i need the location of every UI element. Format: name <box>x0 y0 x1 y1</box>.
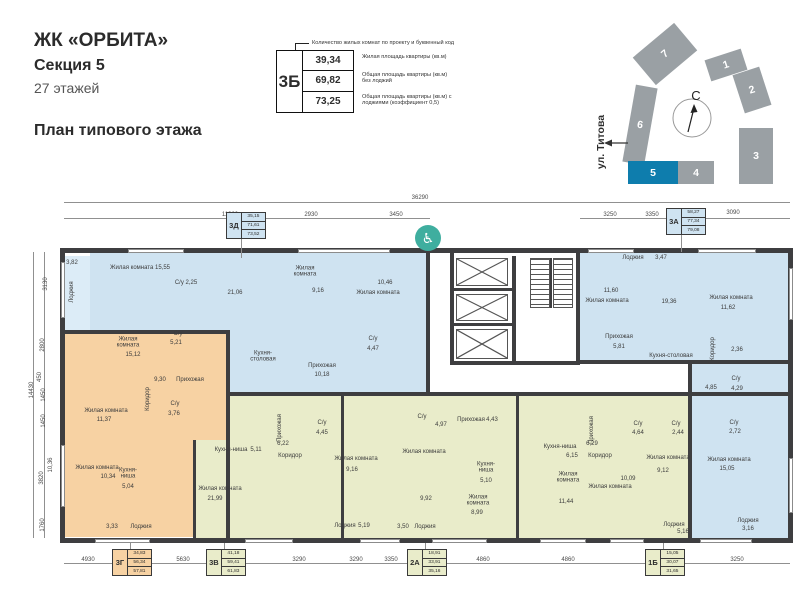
room-label: 9,92 <box>420 496 432 502</box>
wall <box>426 362 430 396</box>
stairs-flight <box>530 258 550 308</box>
room-label: 4,43 <box>486 417 498 423</box>
room-label: Лоджия <box>737 518 758 524</box>
room-label: Коридор <box>588 453 612 459</box>
room-label: Жилая комната <box>75 465 118 471</box>
room-label: С/у <box>369 336 378 342</box>
room-label: 15,12 <box>125 352 140 358</box>
dimension-label: 1760 <box>40 518 46 531</box>
room-label: Жилая комната <box>334 456 377 462</box>
room-label: 2,72 <box>729 429 741 435</box>
room-label: 10,09 <box>620 476 635 482</box>
wall <box>576 252 580 364</box>
room-label: 3,76 <box>168 411 180 417</box>
dimension-label: 1450 <box>41 388 47 401</box>
room-label: Жилая комната <box>198 486 241 492</box>
room-label: Прихожая <box>176 377 204 383</box>
wall <box>454 288 512 291</box>
room-label: 11,44 <box>559 499 574 505</box>
room-label: 3,50 <box>397 524 409 530</box>
wall <box>226 330 230 538</box>
apartment-tag-value: 79,08 <box>682 226 705 234</box>
window <box>61 445 65 507</box>
apartment-tag-value: 73,52 <box>242 230 265 238</box>
floor-region <box>62 256 90 332</box>
room-label: 4,97 <box>435 422 447 428</box>
room-label: Жилая комната <box>402 449 445 455</box>
apartment-tag-code: 3Д <box>227 213 242 238</box>
room-label: 4,47 <box>367 346 379 352</box>
window <box>298 249 390 253</box>
apartment-tag-value: 59,41 <box>222 559 245 568</box>
room-label: С/у <box>318 420 327 426</box>
dimension-label: 4860 <box>476 557 489 563</box>
wall <box>60 330 230 334</box>
wall <box>516 394 519 538</box>
room-label: С/у <box>672 421 681 427</box>
room-label: Кухня-столовая <box>649 353 693 359</box>
stairs-divider <box>550 258 552 308</box>
window <box>432 539 487 543</box>
dimension-label: 3350 <box>645 212 658 218</box>
room-label: 10,34 <box>100 474 115 480</box>
dimension-line <box>681 235 682 252</box>
room-label: С/у <box>418 414 427 420</box>
wall <box>450 252 454 364</box>
room-label: Жилая комната <box>588 484 631 490</box>
apartment-tag-value: 31,65 <box>661 567 684 575</box>
window <box>360 539 400 543</box>
wall <box>60 538 793 543</box>
dimension-label: 3250 <box>730 557 743 563</box>
window <box>95 539 150 543</box>
apartment-tag-code: 2А <box>408 550 423 575</box>
room-label: 3,82 <box>66 260 78 266</box>
wall <box>454 323 512 326</box>
room-label: 5,21 <box>170 340 182 346</box>
apartment-tag-values: 34,8356,3457,81 <box>128 550 151 575</box>
room-label: 21,06 <box>227 290 242 296</box>
room-label: Лоджия <box>414 524 435 530</box>
apartment-tag: 2А18,9133,9135,16 <box>407 549 447 576</box>
apartment-tag-value: 77,34 <box>682 218 705 227</box>
room-label: 6,15 <box>566 453 578 459</box>
wall <box>512 256 516 364</box>
room-label: 19,36 <box>661 299 676 305</box>
room-label: 6,29 <box>586 441 598 447</box>
room-label: Лоджия <box>663 522 684 528</box>
dimension-label: 5630 <box>176 557 189 563</box>
elevator-shaft <box>456 258 508 286</box>
wall <box>450 361 580 365</box>
room-label: 4,85 <box>705 385 717 391</box>
window <box>700 539 752 543</box>
room-label: Жилая комната <box>646 455 689 461</box>
apartment-tag-value: 58,27 <box>682 209 705 218</box>
dimension-label: 4930 <box>81 557 94 563</box>
wall <box>341 394 344 538</box>
room-label: Прихожая <box>277 414 283 442</box>
room-label: 2,44 <box>672 430 684 436</box>
window <box>789 268 793 320</box>
room-label: 9,12 <box>657 468 669 474</box>
dimension-line <box>64 202 790 203</box>
dimension-label: 2800 <box>40 338 46 351</box>
apartment-tag-values: 15,0530,0731,65 <box>661 550 684 575</box>
apartment-tag-value: 41,18 <box>222 550 245 559</box>
apartment-tag-value: 71,61 <box>242 222 265 231</box>
window <box>61 262 65 318</box>
apartment-tag-code: 1Б <box>646 550 661 575</box>
dimension-label: 450 <box>37 372 43 382</box>
window <box>245 539 293 543</box>
room-label: Прихожая <box>589 416 595 444</box>
room-label: Кухня-ниша <box>215 447 248 453</box>
dimension-label: 3820 <box>39 471 45 484</box>
room-label: С/у <box>730 420 739 426</box>
room-label: С/у <box>634 421 643 427</box>
room-label: 4,45 <box>316 430 328 436</box>
room-label: Жилая комната <box>707 457 750 463</box>
room-label: Кухня-ниша <box>115 468 141 481</box>
room-label: Жилая комната <box>462 495 494 508</box>
room-label: 6,22 <box>277 441 289 447</box>
room-label: 5,11 <box>250 447 261 453</box>
dimension-label: 36290 <box>412 195 429 201</box>
room-label: 3,16 <box>742 526 754 532</box>
floor-region <box>578 252 793 362</box>
window <box>588 249 634 253</box>
dimension-label: 4860 <box>561 557 574 563</box>
room-label: Лоджия <box>69 281 75 302</box>
room-label: 9,30 <box>154 377 166 383</box>
floor-plan-canvas: ♿3,82ЛоджияЖилая комната 15,55С/у 2,2521… <box>0 0 800 601</box>
room-label: 5,19 <box>358 523 370 529</box>
room-label: 11,62 <box>721 305 736 311</box>
apartment-tag-values: 35,1571,6173,52 <box>242 213 265 238</box>
apartment-tag-value: 30,07 <box>661 559 684 568</box>
room-label: Прихожая <box>308 363 336 369</box>
room-label: Кухня-ниша <box>544 444 577 450</box>
apartment-tag: 3Г34,8356,3457,81 <box>112 549 152 576</box>
room-label: Жилая комната <box>84 408 127 414</box>
room-label: С/у <box>732 376 741 382</box>
room-label: Прихожая <box>457 417 485 423</box>
room-label: Жилая комната <box>289 266 321 279</box>
floor-plan-poster: { "header": { "title": "ЖК «ОРБИТА»", "s… <box>0 0 800 601</box>
dimension-label: 3450 <box>389 212 402 218</box>
apartment-tag-value: 33,91 <box>423 559 446 568</box>
apartment-tag: 3А58,2777,3479,08 <box>666 208 706 235</box>
room-label: 4,29 <box>731 386 743 392</box>
wall <box>688 360 692 538</box>
window <box>128 249 184 253</box>
room-label: 3,33 <box>106 524 118 530</box>
apartment-tag-code: 3Г <box>113 550 128 575</box>
window <box>698 249 756 253</box>
room-label: С/у <box>171 401 180 407</box>
dimension-line <box>241 239 242 258</box>
room-label: Жилая комната <box>585 298 628 304</box>
room-label: Коридор <box>145 387 151 411</box>
room-label: Лоджия <box>334 523 355 529</box>
apartment-tag: 1Б15,0530,0731,65 <box>645 549 685 576</box>
apartment-tag-value: 56,34 <box>128 559 151 568</box>
room-label: 15,05 <box>719 466 734 472</box>
room-label: Кухня-ниша <box>473 462 499 475</box>
room-label: Жилая комната <box>709 295 752 301</box>
room-label: Коридор <box>710 337 716 361</box>
apartment-tag-value: 35,16 <box>423 567 446 575</box>
room-label: 3,47 <box>655 255 667 261</box>
window <box>610 539 644 543</box>
room-label: Лоджия <box>622 255 643 261</box>
dimension-label: 14430 <box>29 382 35 399</box>
apartment-tag-value: 57,81 <box>128 567 151 575</box>
room-label: Кухня-столовая <box>245 351 281 364</box>
stairs-flight <box>553 258 573 308</box>
dimension-label: 10,36 <box>48 457 54 472</box>
apartment-tag-code: 3А <box>667 209 682 234</box>
dimension-label: 3350 <box>384 557 397 563</box>
window <box>540 539 586 543</box>
elevator-shaft <box>456 294 508 321</box>
room-label: Прихожая <box>605 334 633 340</box>
room-label: 10,46 <box>377 280 392 286</box>
room-label: 11,37 <box>97 417 112 423</box>
elevator-shaft <box>456 329 508 359</box>
dimension-label: 1450 <box>41 414 47 427</box>
apartment-tag-values: 41,1859,4161,83 <box>222 550 245 575</box>
room-label: 5,81 <box>613 344 625 350</box>
room-label: Лоджия <box>130 524 151 530</box>
apartment-tag-value: 18,91 <box>423 550 446 559</box>
room-label: 10,18 <box>314 372 329 378</box>
apartment-tag-value: 61,83 <box>222 567 245 575</box>
room-label: Жилая комната 15,55 <box>110 265 170 271</box>
apartment-tag-value: 35,15 <box>242 213 265 222</box>
apartment-tag-value: 34,83 <box>128 550 151 559</box>
apartment-tag-values: 58,2777,3479,08 <box>682 209 705 234</box>
room-label: Коридор <box>278 453 302 459</box>
room-label: Жилая комната <box>356 290 399 296</box>
room-label: С/у <box>174 331 183 337</box>
room-label: Жилая комната <box>552 472 584 485</box>
dimension-label: 3250 <box>603 212 616 218</box>
dimension-label: 3290 <box>292 557 305 563</box>
apartment-tag: 3Д35,1571,6173,52 <box>226 212 266 239</box>
window <box>789 458 793 513</box>
apartment-tag-values: 18,9133,9135,16 <box>423 550 446 575</box>
floor-region <box>228 394 690 538</box>
room-label: 4,64 <box>632 430 644 436</box>
dimension-label: 3290 <box>349 557 362 563</box>
room-label: 2,36 <box>731 347 743 353</box>
room-label: 8,99 <box>471 510 483 516</box>
room-label: 5,16 <box>677 529 689 535</box>
wall <box>193 440 196 538</box>
room-label: 9,16 <box>346 467 358 473</box>
accessibility-icon: ♿ <box>415 225 441 251</box>
room-label: Жилая комната <box>112 337 144 350</box>
apartment-tag-value: 15,05 <box>661 550 684 559</box>
room-label: С/у 2,25 <box>175 280 197 286</box>
dimension-label: 2930 <box>304 212 317 218</box>
room-label: 21,99 <box>207 496 222 502</box>
apartment-tag: 3В41,1859,4161,83 <box>206 549 246 576</box>
room-label: 11,60 <box>604 288 619 294</box>
wall <box>576 360 790 364</box>
room-label: 5,10 <box>480 478 492 484</box>
apartment-tag-code: 3В <box>207 550 222 575</box>
dimension-label: 3090 <box>726 210 739 216</box>
wall <box>228 392 790 396</box>
dimension-label: 3130 <box>43 277 49 290</box>
room-label: 5,04 <box>122 484 134 490</box>
room-label: 9,16 <box>312 288 324 294</box>
